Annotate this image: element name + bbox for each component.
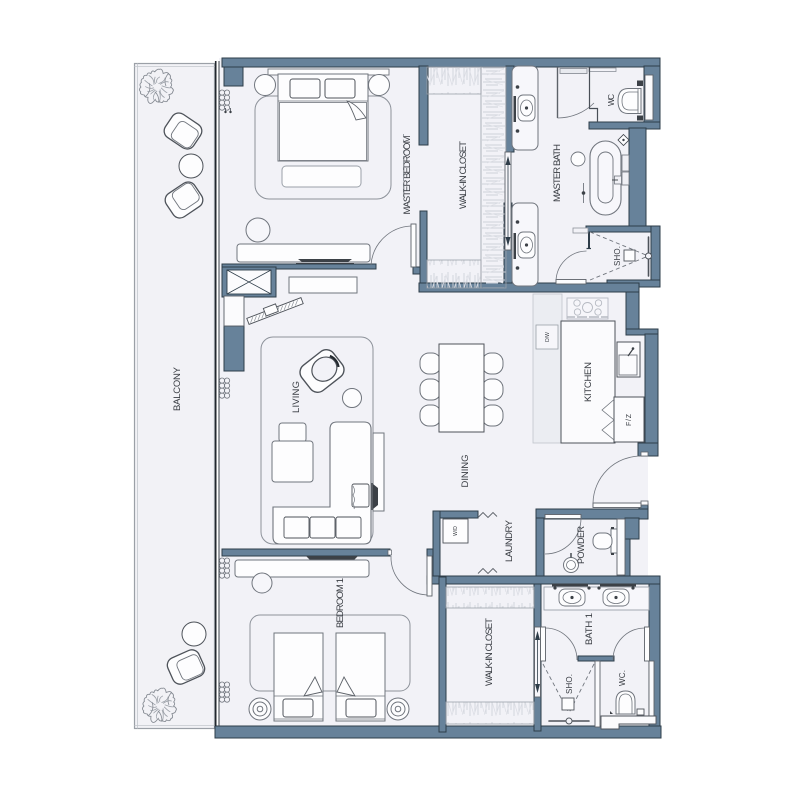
svg-text:KITCHEN: KITCHEN [583, 362, 594, 402]
svg-text:WC.: WC. [618, 670, 627, 686]
svg-text:WALK-IN CLOSET: WALK-IN CLOSET [458, 141, 469, 209]
svg-text:W/D: W/D [453, 526, 459, 536]
svg-text:D/W: D/W [545, 332, 551, 342]
svg-text:MASTER BATH: MASTER BATH [552, 144, 563, 202]
svg-text:MASTER BEDROOM: MASTER BEDROOM [402, 135, 413, 214]
svg-text:SHO.: SHO. [613, 246, 622, 266]
svg-text:LAUNDRY: LAUNDRY [504, 519, 515, 562]
svg-text:LIVING: LIVING [291, 381, 302, 413]
svg-text:WC: WC [607, 94, 616, 106]
svg-text:BATH 1: BATH 1 [584, 613, 595, 645]
svg-text:DINING: DINING [460, 455, 471, 488]
svg-text:WALK-IN CLOSET: WALK-IN CLOSET [484, 618, 495, 686]
svg-text:SHO.: SHO. [565, 674, 574, 694]
svg-text:F/Z: F/Z [626, 413, 633, 426]
svg-text:BALCONY: BALCONY [172, 366, 183, 411]
svg-text:BEDROOM 1: BEDROOM 1 [335, 578, 346, 628]
svg-text:POWDER: POWDER [576, 526, 586, 565]
